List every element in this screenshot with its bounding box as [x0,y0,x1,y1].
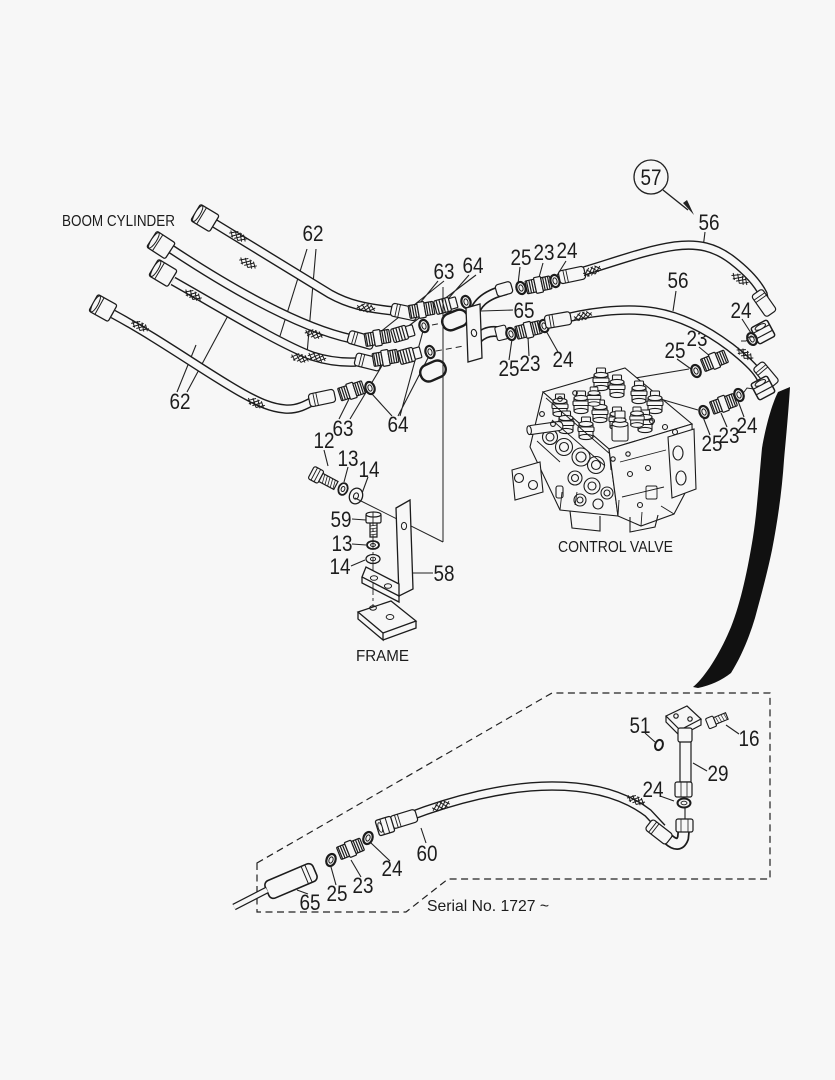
svg-text:24: 24 [553,347,574,372]
svg-text:14: 14 [359,457,380,482]
svg-text:56: 56 [699,210,720,235]
svg-text:14: 14 [330,554,351,579]
svg-text:23: 23 [534,240,555,265]
svg-text:23: 23 [353,873,374,898]
svg-text:25: 25 [327,881,348,906]
svg-text:CONTROL VALVE: CONTROL VALVE [558,539,673,556]
svg-text:16: 16 [739,726,760,751]
svg-text:13: 13 [332,531,353,556]
svg-text:25: 25 [499,356,520,381]
svg-text:24: 24 [557,238,578,263]
svg-text:62: 62 [303,221,324,246]
svg-text:25: 25 [511,245,532,270]
svg-text:24: 24 [737,413,758,438]
svg-text:29: 29 [708,761,729,786]
svg-text:63: 63 [434,259,455,284]
svg-text:64: 64 [463,253,484,278]
svg-text:58: 58 [434,561,455,586]
svg-text:13: 13 [338,446,359,471]
svg-text:51: 51 [630,713,651,738]
svg-text:BOOM CYLINDER: BOOM CYLINDER [62,213,175,230]
svg-text:64: 64 [388,412,409,437]
svg-text:57: 57 [641,165,662,190]
svg-text:60: 60 [417,841,438,866]
svg-text:63: 63 [333,416,354,441]
svg-text:Serial No. 1727 ~: Serial No. 1727 ~ [427,898,549,915]
svg-text:56: 56 [668,268,689,293]
svg-text:FRAME: FRAME [356,648,409,665]
svg-text:12: 12 [314,428,335,453]
svg-text:24: 24 [731,298,752,323]
svg-text:25: 25 [665,338,686,363]
svg-text:65: 65 [300,890,321,915]
svg-text:23: 23 [520,351,541,376]
svg-text:24: 24 [643,777,664,802]
svg-text:59: 59 [331,507,352,532]
svg-text:24: 24 [382,856,403,881]
svg-text:65: 65 [514,298,535,323]
svg-text:62: 62 [170,389,191,414]
